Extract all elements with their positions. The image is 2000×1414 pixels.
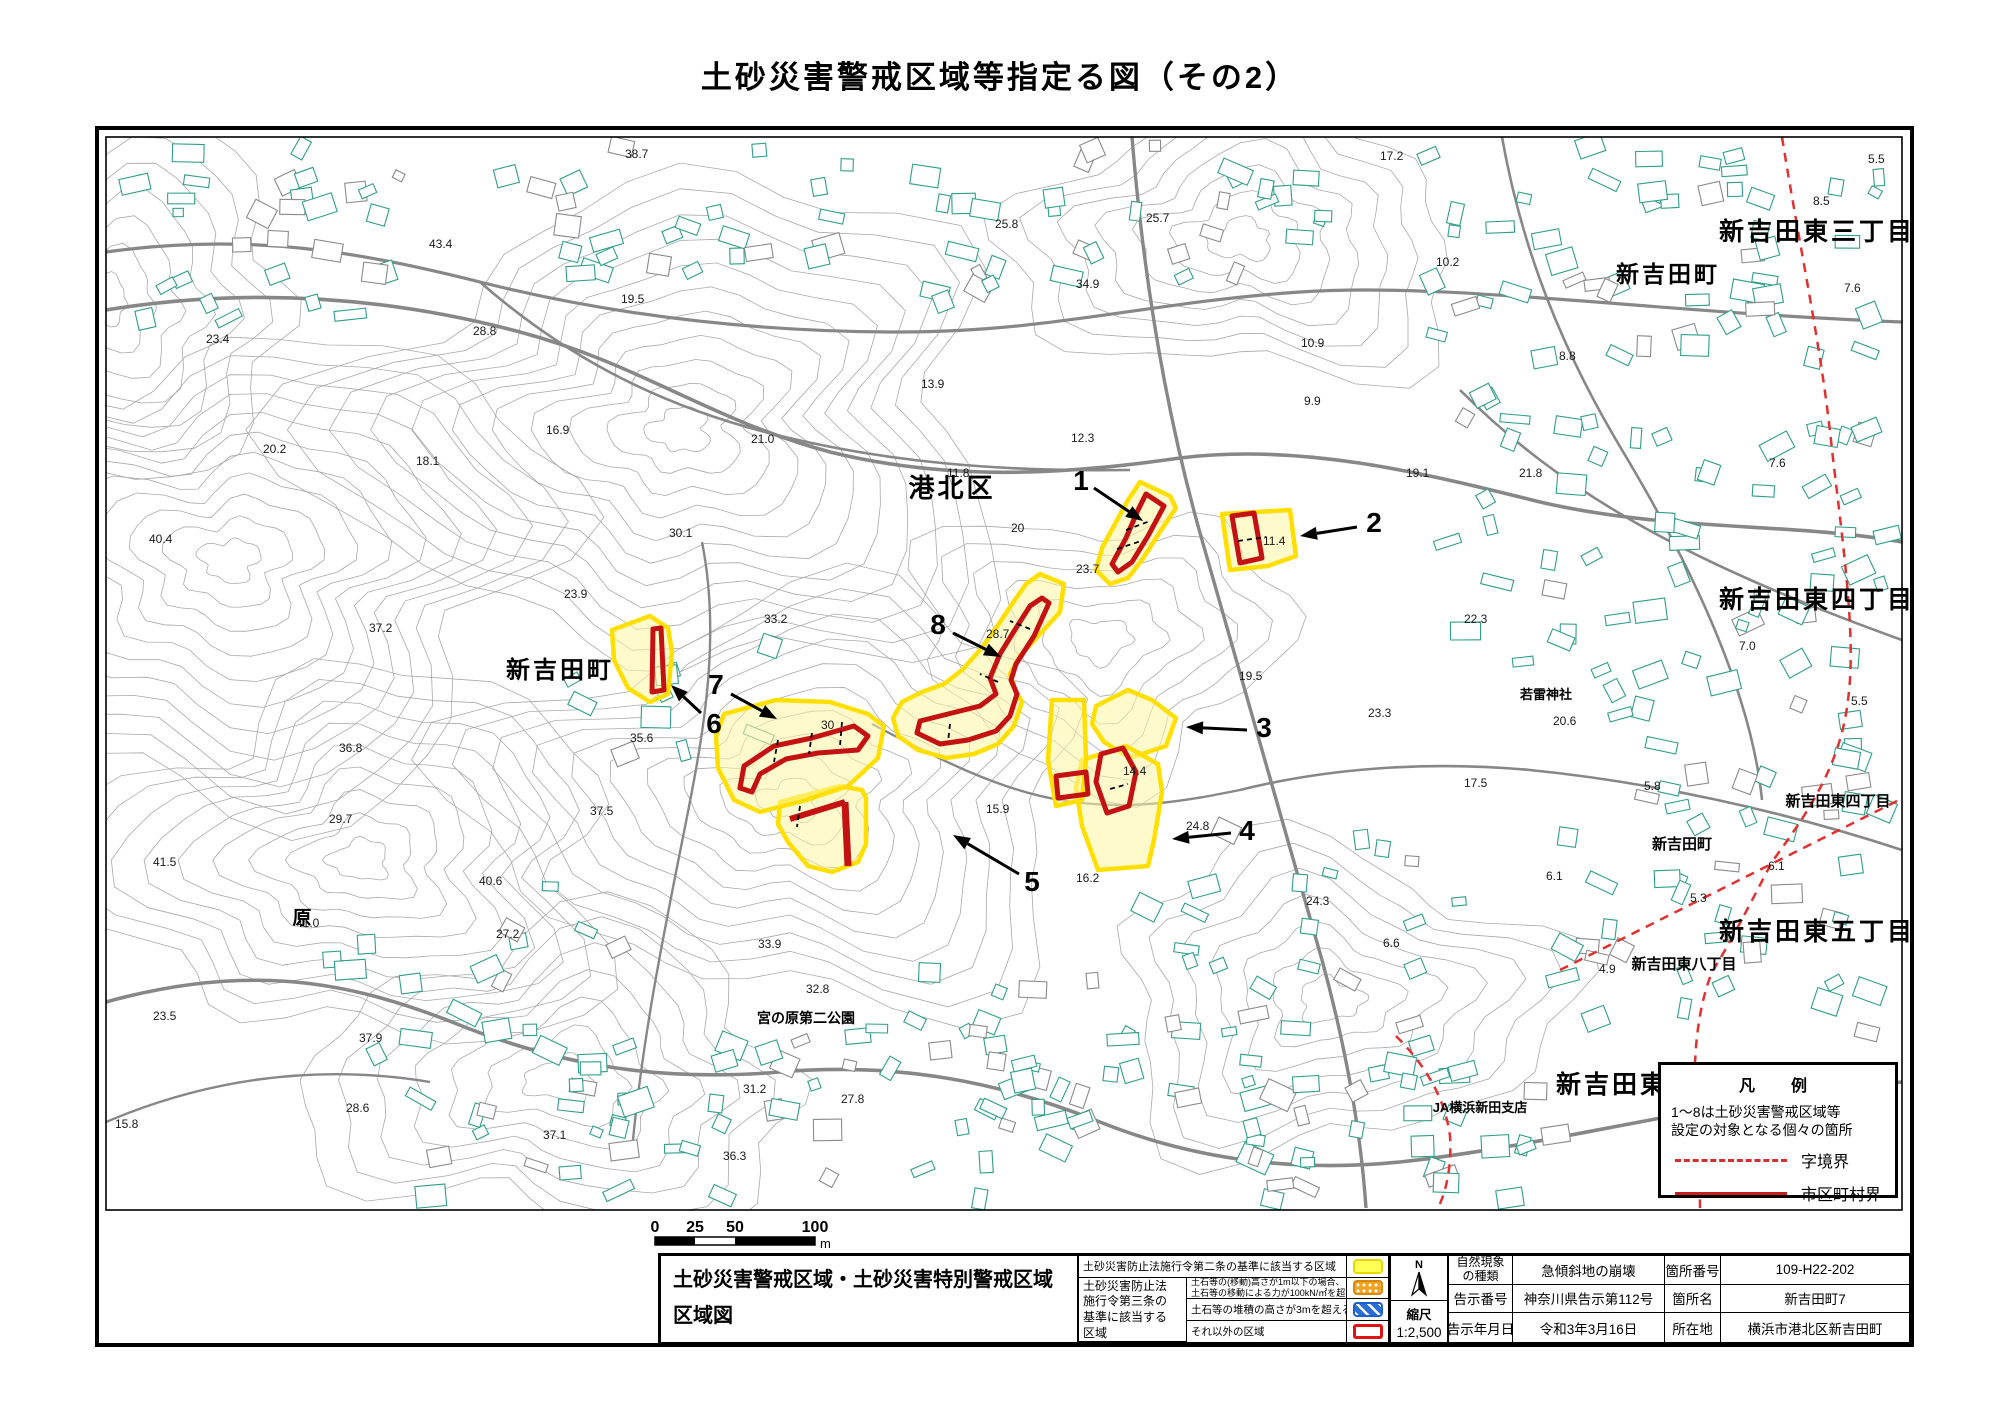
place-label: 新吉田町 [1652,835,1712,853]
spot-elevation: 8.5 [1813,194,1830,208]
spot-elevation: 20 [1011,521,1025,535]
map-legend-box: 凡 例 1～8は土砂災害警戒区域等 設定の対象となる個々の箇所 字境界 市区町村… [1658,1062,1898,1198]
info-label-phenomenon-l1: 自然現象 [1456,1256,1504,1270]
spot-elevation: 17.2 [1380,149,1404,163]
spot-elevation: 22.3 [1464,612,1488,626]
place-labels: 港北区新吉田町新吉田東三丁目新吉田町新吉田東四丁目新吉田東四丁目新吉田町新吉田東… [292,217,1915,1115]
zone-number-5: 5 [1024,866,1040,897]
place-label: 新吉田町 [1616,261,1720,287]
sheet-title-line2: 区域図 [673,1299,1065,1328]
info-label-location: 所在地 [1665,1313,1721,1342]
spot-elevation: 9.9 [1304,394,1321,408]
legend-note: 1～8は土砂災害警戒区域等 設定の対象となる個々の箇所 [1671,1103,1885,1139]
place-label: 新吉田東八丁目 [1631,955,1736,973]
scale-unit: m [820,1236,831,1251]
spot-elevation: 37.2 [369,621,393,635]
solid-boundary-sample [1675,1192,1787,1195]
spot-elevation: 28.6 [346,1101,370,1115]
sheet-title-cell: 土砂災害警戒区域・土砂災害特別警戒区域 区域図 [661,1256,1079,1342]
legend-note-line1: 1～8は土砂災害警戒区域等 [1671,1103,1885,1121]
info-label-notice-number: 告示番号 [1449,1285,1513,1314]
spot-elevation: 6.1 [1768,859,1785,873]
info-value-notice-date: 令和3年3月16日 [1513,1313,1665,1342]
spot-elevation: 23.9 [564,587,588,601]
dashed-boundary-label: 字境界 [1801,1148,1849,1172]
scale-value: 1:2,500 [1396,1325,1441,1340]
place-label: 宮の原第二公園 [757,1010,855,1026]
spot-elevation: 37.5 [590,804,614,818]
zone-number-8: 8 [930,609,946,640]
scale-tick-label: 100 [802,1219,829,1236]
page-title: 土砂災害警戒区域等指定る図（その2） [0,52,2000,97]
zone-number-3: 3 [1256,712,1272,743]
place-label: 新吉田東三丁目 [1719,217,1915,246]
spot-elevation: 20.2 [263,442,287,456]
scale-bar: 02550100m [651,1219,831,1251]
orange-dotted-swatch [1353,1280,1383,1295]
north-arrow-cell: N [1391,1256,1447,1301]
spot-elevation: 23.4 [206,332,230,346]
yellow-zone-swatch [1353,1259,1383,1274]
spot-elevation: 16.9 [546,423,570,437]
zone-number-7: 7 [708,669,724,700]
spot-elevation: 33.2 [764,612,788,626]
spot-elevation: 19.1 [1406,466,1430,480]
spot-elevation: 4.9 [1599,962,1616,976]
spot-elevation: 23.5 [153,1009,177,1023]
place-label: 若雷神社 [1519,687,1572,702]
info-value-site-name: 新吉田町7 [1721,1285,1909,1314]
info-label-site-name: 箇所名 [1665,1285,1721,1314]
place-label: 原 [292,908,311,929]
blue-striped-swatch [1353,1302,1383,1317]
sheet-title-line1: 土砂災害警戒区域・土砂災害特別警戒区域 [673,1263,1065,1292]
north-arrow-icon [1409,1271,1429,1297]
spot-elevation: 36.8 [339,741,363,755]
spot-elevation: 43.4 [429,237,453,251]
spot-elevation: 19.5 [621,292,645,306]
spot-elevation: 10.2 [1436,255,1460,269]
spot-elevation: 37.9 [359,1031,383,1045]
spot-elevation: 30 [821,718,835,732]
spot-elevation: 31.2 [743,1082,767,1096]
spot-elevation: 37.1 [543,1128,567,1142]
place-label: 新吉田東四丁目 [1719,585,1915,614]
spot-elevation: 35.6 [630,731,654,745]
spot-elevation: 25.8 [995,217,1019,231]
scale-cell: 縮尺 1:2,500 [1391,1301,1447,1342]
spot-elevation: 15.9 [986,802,1010,816]
info-label-site-number: 箇所番号 [1665,1256,1721,1285]
spot-elevation: 18.1 [416,454,440,468]
place-label: 新吉田東 [1556,1070,1668,1099]
dashed-boundary-sample [1675,1159,1787,1162]
spot-elevation: 5.5 [1851,694,1868,708]
legend-row-dashed: 字境界 [1671,1148,1885,1172]
north-scale-cell: N 縮尺 1:2,500 [1391,1256,1449,1342]
spot-elevation: 10.9 [1301,336,1325,350]
spot-elevation: 32.8 [806,982,830,996]
legend-row-solid: 市区町村界 [1671,1181,1885,1205]
spot-elevation: 28.8 [473,324,497,338]
spot-elevation: 20.6 [1553,714,1577,728]
title-block: 土砂災害警戒区域・土砂災害特別警戒区域 区域図 土砂災害防止法施行令第二条の基準… [658,1253,1912,1345]
legend-title: 凡 例 [1671,1072,1885,1096]
spot-elevation: 27.2 [496,927,520,941]
map-inner: 38.717.25.525.825.743.434.919.510.27.623… [0,61,1905,1235]
zone-number-1: 1 [1073,465,1089,496]
place-label: 新吉田町 [506,656,614,684]
spot-elevation: 7.6 [1769,456,1786,470]
spot-elevation: 30.1 [669,526,693,540]
scale-tick-label: 25 [686,1219,704,1236]
spot-elevation: 7.0 [1739,639,1756,653]
spot-elevation: 19.5 [1239,669,1263,683]
info-value-phenomenon: 急傾斜地の崩壊 [1513,1256,1665,1285]
spot-elevation: 6.1 [1546,869,1563,883]
spot-elevation: 5.3 [1690,891,1707,905]
spot-elevation: 11.4 [1263,534,1286,548]
legend-row2-swatch-cell [1347,1278,1389,1300]
spot-elevation: 21.0 [751,432,775,446]
spot-elevation: 23.7 [1076,562,1100,576]
zone-number-2: 2 [1366,507,1382,538]
legend-row2-label: 土石等の(移動)高さが1m以下の場合、 土石等の移動による力が100kN/㎡を超… [1187,1278,1347,1300]
spot-elevation: 5.5 [1868,152,1885,166]
spot-elevation: 40.6 [479,874,503,888]
spot-elevation: 8.8 [1559,349,1576,363]
spot-elevation: 33.9 [758,937,782,951]
zone-number-4: 4 [1239,815,1255,846]
info-label-phenomenon: 自然現象 の種類 [1449,1256,1513,1285]
spot-elevation: 38.7 [625,147,649,161]
spot-elevation: 21.8 [1519,466,1543,480]
spot-elevation: 27.8 [841,1092,865,1106]
legend-row1-swatch-cell [1347,1256,1389,1278]
spot-elevation: 23.3 [1368,706,1392,720]
spot-elevation: 36.3 [723,1149,747,1163]
scale-tick-label: 50 [726,1219,744,1236]
zone-legend-table: 土砂災害防止法施行令第二条の基準に該当する区域 土砂災害防止法 施行令第三条の … [1079,1256,1391,1342]
legend-group-label: 土砂災害防止法 施行令第三条の 基準に該当する 区域 [1079,1278,1187,1343]
spot-elevation: 25.7 [1146,211,1170,225]
spot-elevation: 24.3 [1306,894,1330,908]
spot-elevation: 5.8 [1644,779,1661,793]
spot-elevation: 14.4 [1123,764,1147,778]
legend-row1-label: 土砂災害防止法施行令第二条の基準に該当する区域 [1079,1256,1347,1278]
spot-elevation: 28.7 [986,627,1010,641]
spot-elevation: 24.8 [1186,819,1210,833]
red-outline-swatch [1353,1324,1383,1339]
spot-elevation: 7.6 [1844,281,1861,295]
place-label: 港北区 [908,473,995,503]
legend-row4-label: それ以外の区域 [1187,1321,1347,1343]
info-label-phenomenon-l2: の種類 [1462,1270,1498,1284]
legend-note-line2: 設定の対象となる個々の箇所 [1671,1121,1885,1139]
spot-elevation: 6.6 [1383,936,1400,950]
legend-row3-swatch-cell [1347,1299,1389,1321]
info-table: 自然現象 の種類 急傾斜地の崩壊 箇所番号 109-H22-202 告示番号 神… [1449,1256,1909,1342]
info-value-site-number: 109-H22-202 [1721,1256,1909,1285]
info-value-notice-number: 神奈川県告示第112号 [1513,1285,1665,1314]
spot-elevation: 41.5 [153,855,177,869]
spot-elevation: 17.5 [1464,776,1488,790]
legend-row2-line1: 土石等の(移動)高さが1m以下の場合、 [1191,1278,1345,1288]
zone-number-6: 6 [706,708,722,739]
info-value-location: 横浜市港北区新吉田町 [1721,1313,1909,1342]
spot-elevation: 34.9 [1076,277,1100,291]
legend-row2-line2: 土石等の移動による力が100kN/㎡を超える区域 [1191,1288,1347,1299]
scale-label: 縮尺 [1406,1304,1431,1323]
spot-elevation: 15.8 [115,1117,139,1131]
legend-row4-swatch-cell [1347,1321,1389,1343]
spot-elevation: 13.9 [921,377,945,391]
place-label: JA横浜新田支店 [1433,1100,1528,1115]
spot-elevation: 29.7 [329,812,353,826]
spot-elevation: 12.3 [1071,431,1095,445]
info-label-notice-date: 告示年月日 [1449,1313,1513,1342]
legend-row3-label: 土石等の堆積の高さが3mを超える区域 [1187,1299,1347,1321]
spot-elevation: 16.2 [1076,871,1100,885]
solid-boundary-label: 市区町村界 [1801,1181,1881,1205]
place-label: 新吉田東五丁目 [1719,917,1915,946]
north-label: N [1415,1260,1423,1271]
spot-elevation: 40.4 [149,532,173,546]
scale-tick-label: 0 [651,1219,660,1236]
place-label: 新吉田東四丁目 [1785,792,1890,810]
